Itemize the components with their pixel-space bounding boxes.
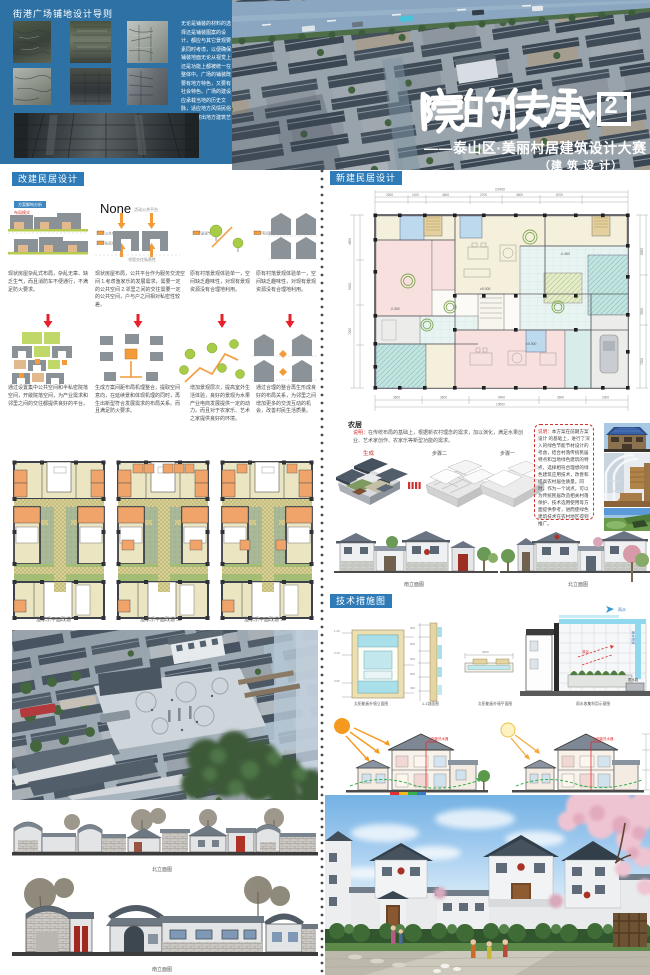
svg-text:2300: 2300	[602, 396, 609, 400]
svg-text:600: 600	[410, 657, 415, 661]
svg-text:邻里交往私密性: 邻里交往私密性	[128, 256, 156, 262]
svg-text:8700: 8700	[556, 193, 563, 197]
svg-text:活动公共平台: 活动公共平台	[134, 206, 158, 212]
svg-text:淋浴: 淋浴	[582, 649, 589, 654]
svg-text:4800: 4800	[348, 238, 352, 245]
svg-text:3600: 3600	[482, 650, 489, 654]
svg-text:2500: 2500	[386, 193, 393, 197]
svg-text:300: 300	[410, 686, 415, 690]
svg-text:蓄水箱: 蓄水箱	[628, 677, 639, 682]
svg-text:0.90: 0.90	[334, 679, 340, 683]
svg-text:1-1剖面图: 1-1剖面图	[422, 701, 439, 706]
svg-text:2700: 2700	[480, 193, 487, 197]
svg-text:7200: 7200	[640, 358, 644, 365]
svg-text:太阳能板外墙平面图: 太阳能板外墙平面图	[478, 701, 512, 706]
svg-text:5400: 5400	[348, 283, 352, 290]
svg-text:-0.450: -0.450	[560, 252, 570, 256]
svg-text:1100: 1100	[412, 193, 419, 197]
svg-text:6000: 6000	[640, 248, 644, 255]
svg-text:-0.300: -0.300	[390, 307, 400, 311]
svg-text:太阳能板外墙立面图: 太阳能板外墙立面图	[354, 701, 388, 706]
svg-text:太阳能热水器: 太阳能热水器	[593, 736, 614, 741]
svg-text:3600: 3600	[557, 396, 564, 400]
svg-text:None: None	[100, 201, 131, 216]
svg-text:雨水收集利用示意图: 雨水收集利用示意图	[576, 701, 610, 706]
svg-text:雨水管道: 雨水管道	[631, 631, 636, 645]
svg-text:±0.000: ±0.000	[526, 342, 536, 346]
svg-text:23400: 23400	[495, 188, 505, 192]
svg-text:2.10: 2.10	[334, 651, 340, 655]
svg-text:3900: 3900	[640, 308, 644, 315]
svg-text:3600: 3600	[516, 193, 523, 197]
svg-text:300: 300	[410, 626, 415, 630]
svg-text:5400: 5400	[498, 396, 505, 400]
svg-text:±0.000: ±0.000	[480, 287, 490, 291]
svg-text:3600: 3600	[440, 396, 447, 400]
svg-text:3600: 3600	[393, 396, 400, 400]
svg-text:1.26: 1.26	[334, 629, 340, 633]
svg-text:900: 900	[410, 642, 415, 646]
svg-text:7200: 7200	[348, 328, 352, 335]
svg-text:4600: 4600	[442, 193, 449, 197]
svg-text:900: 900	[410, 672, 415, 676]
svg-text:太阳能热水器: 太阳能热水器	[428, 736, 449, 741]
svg-text:19500: 19500	[496, 403, 505, 407]
svg-text:雨水: 雨水	[618, 606, 626, 612]
